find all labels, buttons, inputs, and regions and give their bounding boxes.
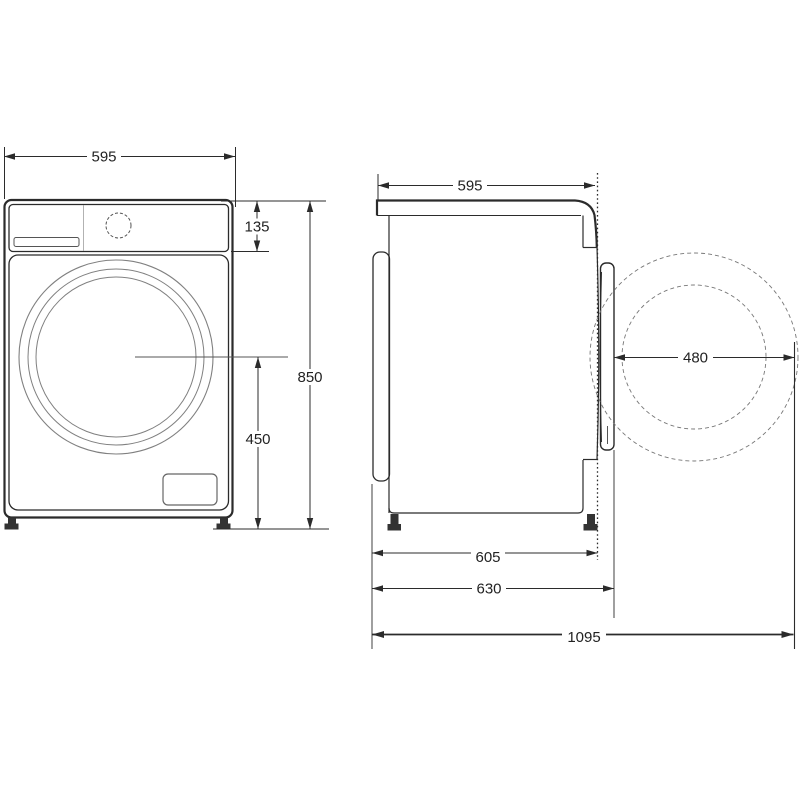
program-knob	[106, 213, 131, 238]
front-feet	[5, 518, 231, 530]
dim-depth-door-open: 1095	[372, 628, 794, 646]
side-lid	[377, 201, 597, 248]
dim-door-swing: 480	[614, 350, 795, 367]
front-lower-panel	[9, 255, 229, 510]
dim-label-overall-height: 850	[297, 369, 322, 386]
dim-front-width: 595	[4, 149, 235, 166]
dim-door-center-height: 450	[241, 357, 275, 529]
dim-label-side-depth-top: 595	[457, 178, 482, 195]
front-cabinet-outline	[5, 200, 233, 518]
washer-front-view	[5, 200, 233, 530]
dim-panel-height: 135	[240, 201, 274, 252]
washer-side-view	[373, 173, 798, 560]
side-feet	[388, 514, 598, 531]
open-door	[600, 263, 614, 450]
side-bottom-line	[389, 460, 583, 513]
dim-depth-body: 605	[372, 548, 598, 566]
dimension-diagram: 595 135 850 450	[0, 0, 800, 800]
dim-overall-height: 850	[293, 201, 327, 529]
dim-label-door-center-height: 450	[245, 431, 270, 448]
front-control-panel	[9, 205, 229, 252]
dim-label-depth-overall: 630	[476, 581, 501, 598]
side-rear-panel	[373, 252, 390, 481]
display-panel	[14, 238, 79, 247]
dim-label-depth-body: 605	[475, 549, 500, 566]
dim-label-depth-door-open: 1095	[567, 629, 600, 646]
drain-filter-door	[163, 474, 217, 505]
dimension-diagram-page: 595 135 850 450	[0, 0, 800, 800]
dim-label-front-width: 595	[91, 149, 116, 166]
dim-depth-overall: 630	[372, 581, 614, 598]
dim-label-panel-height: 135	[244, 219, 269, 236]
dim-label-door-swing: 480	[683, 350, 708, 367]
side-door-bulge	[583, 248, 599, 460]
dim-side-depth-top: 595	[378, 178, 595, 195]
